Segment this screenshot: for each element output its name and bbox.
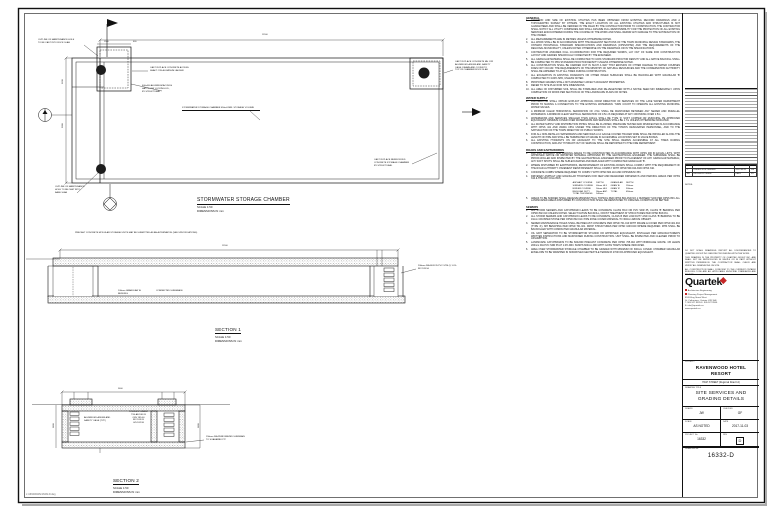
revision-row: No.REVISION / ISSUEDATEBY (686, 173, 757, 177)
field-value: 2017-11-03 (723, 424, 757, 428)
field-value: D (723, 437, 757, 445)
logo-block: Quartek Architecture EngineeringPlanning… (685, 274, 757, 311)
callout-note: FINISHED GRADE T/SLAB 186.20 OBV 185.00 … (125, 411, 152, 425)
field-drawn: DRAWNJW (683, 407, 721, 420)
section1-title-block: SECTION 1 SCALE 1:50 DIMENSIONS IN mm (215, 318, 242, 344)
contact-lines: Architecture EngineeringPlanning Project… (685, 289, 757, 311)
note-text: OIL GRIT SEPARATOR TO BE STORMCEPTOR STC… (531, 233, 680, 242)
dimension-label: 2800 (53, 423, 55, 428)
callout-note: ALUMINUM LADDER AND SAFETY CAGE (TYP.) (84, 417, 122, 423)
note-text: CONTRACTOR SHALL OBTAIN EXPLICIT APPROVA… (531, 101, 680, 110)
notes-table-cell (624, 193, 635, 196)
notes-table-cell: TOTAL THICKNESS (571, 193, 595, 196)
notes-table: ASPHALT COURSEDEPTHGRANULARDEPTHSURFACE … (571, 182, 635, 196)
note-text: ALL WORK SHALL BE IN ACCORDANCE WITH THE… (531, 42, 680, 51)
callout-note: COMPACTED SUBGRADE (156, 290, 186, 293)
note-item: 10.ALL AREA OF DISTURBED SOIL SHALL BE S… (526, 89, 680, 95)
plan-title: STORMWATER STORAGE CHAMBER (197, 197, 290, 205)
field-value: AS NOTED (685, 424, 718, 428)
project-block: PROJECT RAVENWOOD HOTEL RESORT HIGH STRE… (683, 360, 759, 459)
dimension-label: 1500 (104, 41, 109, 43)
callout-note: CAST IN PLACE CONCRETE ACCESS SHAFT C/W … (150, 67, 204, 73)
note-text: ALL EXCAVATION IN EXISTING ROADWAYS OR O… (531, 75, 680, 81)
revision-cell: BY (750, 173, 757, 177)
revision-cell: No. (686, 173, 693, 177)
note-item: 1.LOCATION AND SIZE OF EXISTING UTILITIE… (526, 20, 680, 37)
title-block: DREISSUED FOR CONSTRUCTION2017-11-03JWCI… (682, 13, 759, 497)
note-text: WHERE DISTURBED BY EARTHWORKS, REINSTATE… (531, 165, 680, 171)
field-label: REV (723, 434, 757, 436)
note-item: 5.AREAS TO BE SODDED SHALL RECEIVE MINIM… (526, 198, 680, 204)
notes-table-cell: 540mm (595, 193, 609, 196)
callout-note: CAST IN PLACE CONCRETE MH C/W ALUMINUM L… (455, 61, 517, 72)
note-text: CONTRACTOR ASSUMES FULL CO-ORDINATION FO… (531, 52, 680, 58)
field-label: PROJECT No. (685, 434, 718, 436)
dimension-label: 11500 (262, 34, 268, 36)
callout-note: 100mm GRANULAR 'A' BEDDING (118, 290, 150, 296)
revision-cell: DATE (734, 173, 750, 177)
quartek-logo: Quartek (685, 277, 757, 288)
section1-title: SECTION 1 (215, 327, 241, 334)
fields-grid: DRAWNJWCHECKEDGFSCALEAS NOTEDDATE2017-11… (683, 406, 759, 447)
field-label: DATE (723, 421, 757, 423)
note-item: 3.ALL WORK SHALL BE IN ACCORDANCE WITH T… (526, 42, 680, 51)
notes-column: GENERAL1.LOCATION AND SIZE OF EXISTING U… (526, 14, 680, 380)
section2-title-block: SECTION 2 SCALE 1:50 DIMENSIONS IN mm (113, 469, 140, 495)
note-item: 1.CONTRACTOR SHALL OBTAIN EXPLICIT APPRO… (526, 101, 680, 110)
dimension-label: 600 (133, 41, 136, 43)
callout-note: OUTLINE OF MAINTENANCE HOLE TO BE CAST I… (38, 39, 86, 45)
note-item: 4.DRIVEWAY ASPHALT AND GRANULAR THICKNES… (526, 176, 680, 182)
note-text: AREA OVER STORMWATER STORAGE CHAMBER TO … (531, 249, 680, 255)
dimension-label: 5600 (118, 388, 123, 390)
note-item: 6.ALL CONSTRUCTION SHALL BE CARRIED OUT … (526, 65, 680, 74)
field-label: SCALE (685, 421, 718, 423)
callout-note: 600x600 ALUMINUM ACCESS HATCH C/W LOCKIN… (142, 85, 184, 93)
plan-title-block: STORMWATER STORAGE CHAMBER SCALE 1:50 DI… (197, 188, 290, 214)
revision-history (685, 88, 757, 166)
section2-dims: DIMENSIONS IN mm (113, 491, 140, 495)
callout-note: OUTLINE OF MAINTENANCE HOLE TO BE CAST I… (55, 186, 95, 194)
sheet-shadow-right (765, 12, 767, 506)
dimension-label: 1200 (62, 79, 64, 84)
sheet-shadow-bottom (22, 504, 767, 506)
note-text: ALL CONSTRUCTION SHALL BE CARRIED OUT IN… (531, 65, 680, 74)
file-path: L:\16332\DWG\16332-D.dwg (26, 494, 56, 496)
contact-line: www.quartek.ca (685, 308, 757, 311)
notes-table-cell (609, 193, 624, 196)
plan-view (39, 19, 482, 211)
note-item: 6.AREA OVER STORMWATER STORAGE CHAMBER T… (526, 249, 680, 255)
callout-note: CAST IN PLACE REINFORCED CONCRETE STORAG… (374, 159, 422, 167)
note-item: 1.FILL FOR ROADWAY AND PARKING AREAS TO … (526, 153, 680, 165)
field-value: 16332 (685, 437, 718, 441)
field-value: JW (685, 411, 718, 415)
drawing-title: SITE SERVICES AND GRADING DETAILS (683, 389, 759, 406)
revision-letter: D (736, 437, 744, 445)
note-item: 7.ALL EXCAVATION IN EXISTING ROADWAYS OR… (526, 75, 680, 81)
legal-paragraph: THIS DRAWING IS THE PROPERTY OF QUARTEK … (685, 257, 756, 267)
note-text: LOCATION AND SIZE OF EXISTING UTILITIES … (531, 20, 680, 37)
callout-note: 200mm DIA SDR 35 PVC STM @ 1.0% INV 183.… (418, 265, 476, 271)
section2-title: SECTION 2 (113, 478, 139, 485)
benchmark-icon (39, 109, 117, 211)
callout-note: STORMWATER STORAGE CHAMBER 450m3 MIN. ST… (182, 107, 260, 111)
field-label: DRAWN (685, 408, 718, 410)
callout-note: PRECAST CONCRETE MODULAR STORAGE UNITS M… (75, 232, 247, 235)
note-item: 6.ALL EXISTING HYDRANTS ON OR ADJACENT T… (526, 140, 680, 146)
note-item: 2.WHERE DISTURBED BY EARTHWORKS, REINSTA… (526, 165, 680, 171)
section1-view (26, 249, 416, 304)
note-text: AREAS TO BE SODDED SHALL RECEIVE MINIMUM… (531, 198, 680, 204)
field-checked: CHECKEDGF (721, 407, 759, 420)
drawing-number: 16332-D (683, 450, 759, 459)
logo-text: Quartek (685, 276, 722, 288)
legal-paragraph: DO NOT SCALE DRAWINGS. REPORT ALL DISCRE… (685, 250, 756, 255)
revision-table: DREISSUED FOR CONSTRUCTION2017-11-03JWCI… (685, 164, 757, 177)
notes-label: NOTES: (685, 184, 693, 186)
plan-dims: DIMENSIONS IN mm (197, 210, 290, 214)
note-text: ALL WATER SUPPLY AND DISTRIBUTION PIPING… (531, 124, 680, 133)
revision-cell: REVISION / ISSUE (692, 173, 734, 177)
project-name: RAVENWOOD HOTEL RESORT (683, 363, 759, 378)
note-text: ALL EXISTING HYDRANTS ON OR ADJACENT TO … (531, 140, 680, 146)
note-text: FILL FOR ROADWAY AND PARKING AREAS TO BE… (531, 153, 680, 165)
note-text: DRIVEWAY ASPHALT AND GRANULAR THICKNESS … (531, 176, 680, 182)
note-item: 2.A MINIMUM CLEAR HORIZONTAL SEPARATION … (526, 111, 680, 117)
field-value: GF (723, 411, 757, 415)
field-label: CHECKED (723, 408, 757, 410)
dimension-label: 2800 (198, 423, 200, 428)
dimension-label: 11500 (222, 245, 228, 247)
note-text: ALL AREA OF DISTURBED SOIL SHALL BE STAB… (531, 89, 680, 95)
note-item: 3.SEWER MAINTENANCE HOLES SHALL BE PRECA… (526, 223, 680, 232)
dimension-label: 5000 (62, 123, 64, 128)
section1-dims: DIMENSIONS IN mm (215, 340, 242, 344)
note-item: 4.ALL WATER SUPPLY AND DISTRIBUTION PIPI… (526, 124, 680, 133)
field-project-no-: PROJECT No.16332 (683, 433, 721, 447)
note-text: A MINIMUM CLEAR HORIZONTAL SEPARATION OF… (531, 111, 680, 117)
note-item: 4.CONTRACTOR ASSUMES FULL CO-ORDINATION … (526, 52, 680, 58)
callout-note: 150mm DIA PERFORATED SUBDRAIN TO SOAKAWA… (206, 436, 252, 442)
drawing-sheet: STORMWATER STORAGE CHAMBER SCALE 1:50 DI… (0, 0, 768, 512)
field-rev: REVD (721, 433, 759, 447)
notes-table-row: TOTAL THICKNESS540mm (571, 193, 635, 196)
field-scale: SCALEAS NOTED (683, 420, 721, 433)
note-item: 4.OIL GRIT SEPARATOR TO BE STORMCEPTOR S… (526, 233, 680, 242)
field-date: DATE2017-11-03 (721, 420, 759, 433)
revision-row: DREISSUED FOR CONSTRUCTION2017-11-03JW (686, 165, 757, 169)
note-text: SEWER MAINTENANCE HOLES SHALL BE PRECAST… (531, 223, 680, 232)
